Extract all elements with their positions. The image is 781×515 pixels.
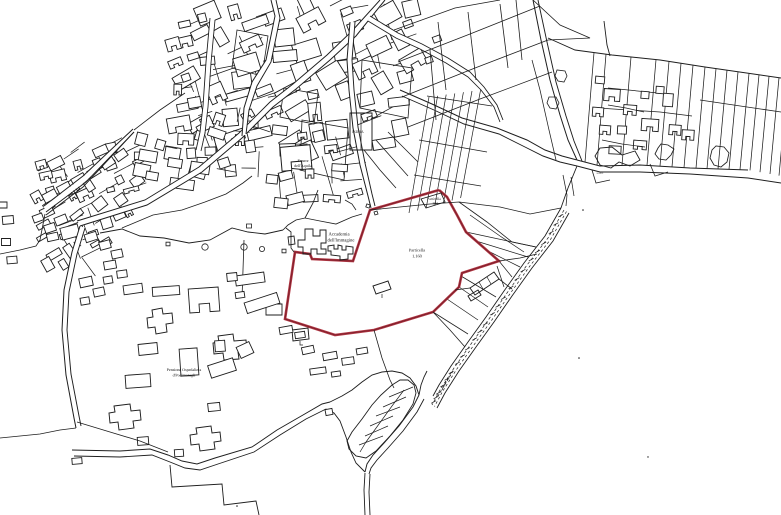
svg-text:Particella: Particella [409,247,425,252]
svg-text:dell'Aquila: dell'Aquila [294,163,312,168]
svg-text:Accademia: Accademia [328,232,350,237]
svg-text:Particella: Particella [427,197,441,201]
svg-text:ISDRA: ISDRA [352,130,364,134]
svg-text:1.160: 1.160 [412,253,422,258]
svg-text:nome: nome [597,171,604,175]
svg-text:Pensione Ospedaliera: Pensione Ospedaliera [167,367,202,372]
svg-text:194: 194 [432,201,438,205]
svg-text:d'Podimazagli: d'Podimazagli [173,372,197,377]
svg-text:dell'Immagine: dell'Immagine [328,238,355,243]
